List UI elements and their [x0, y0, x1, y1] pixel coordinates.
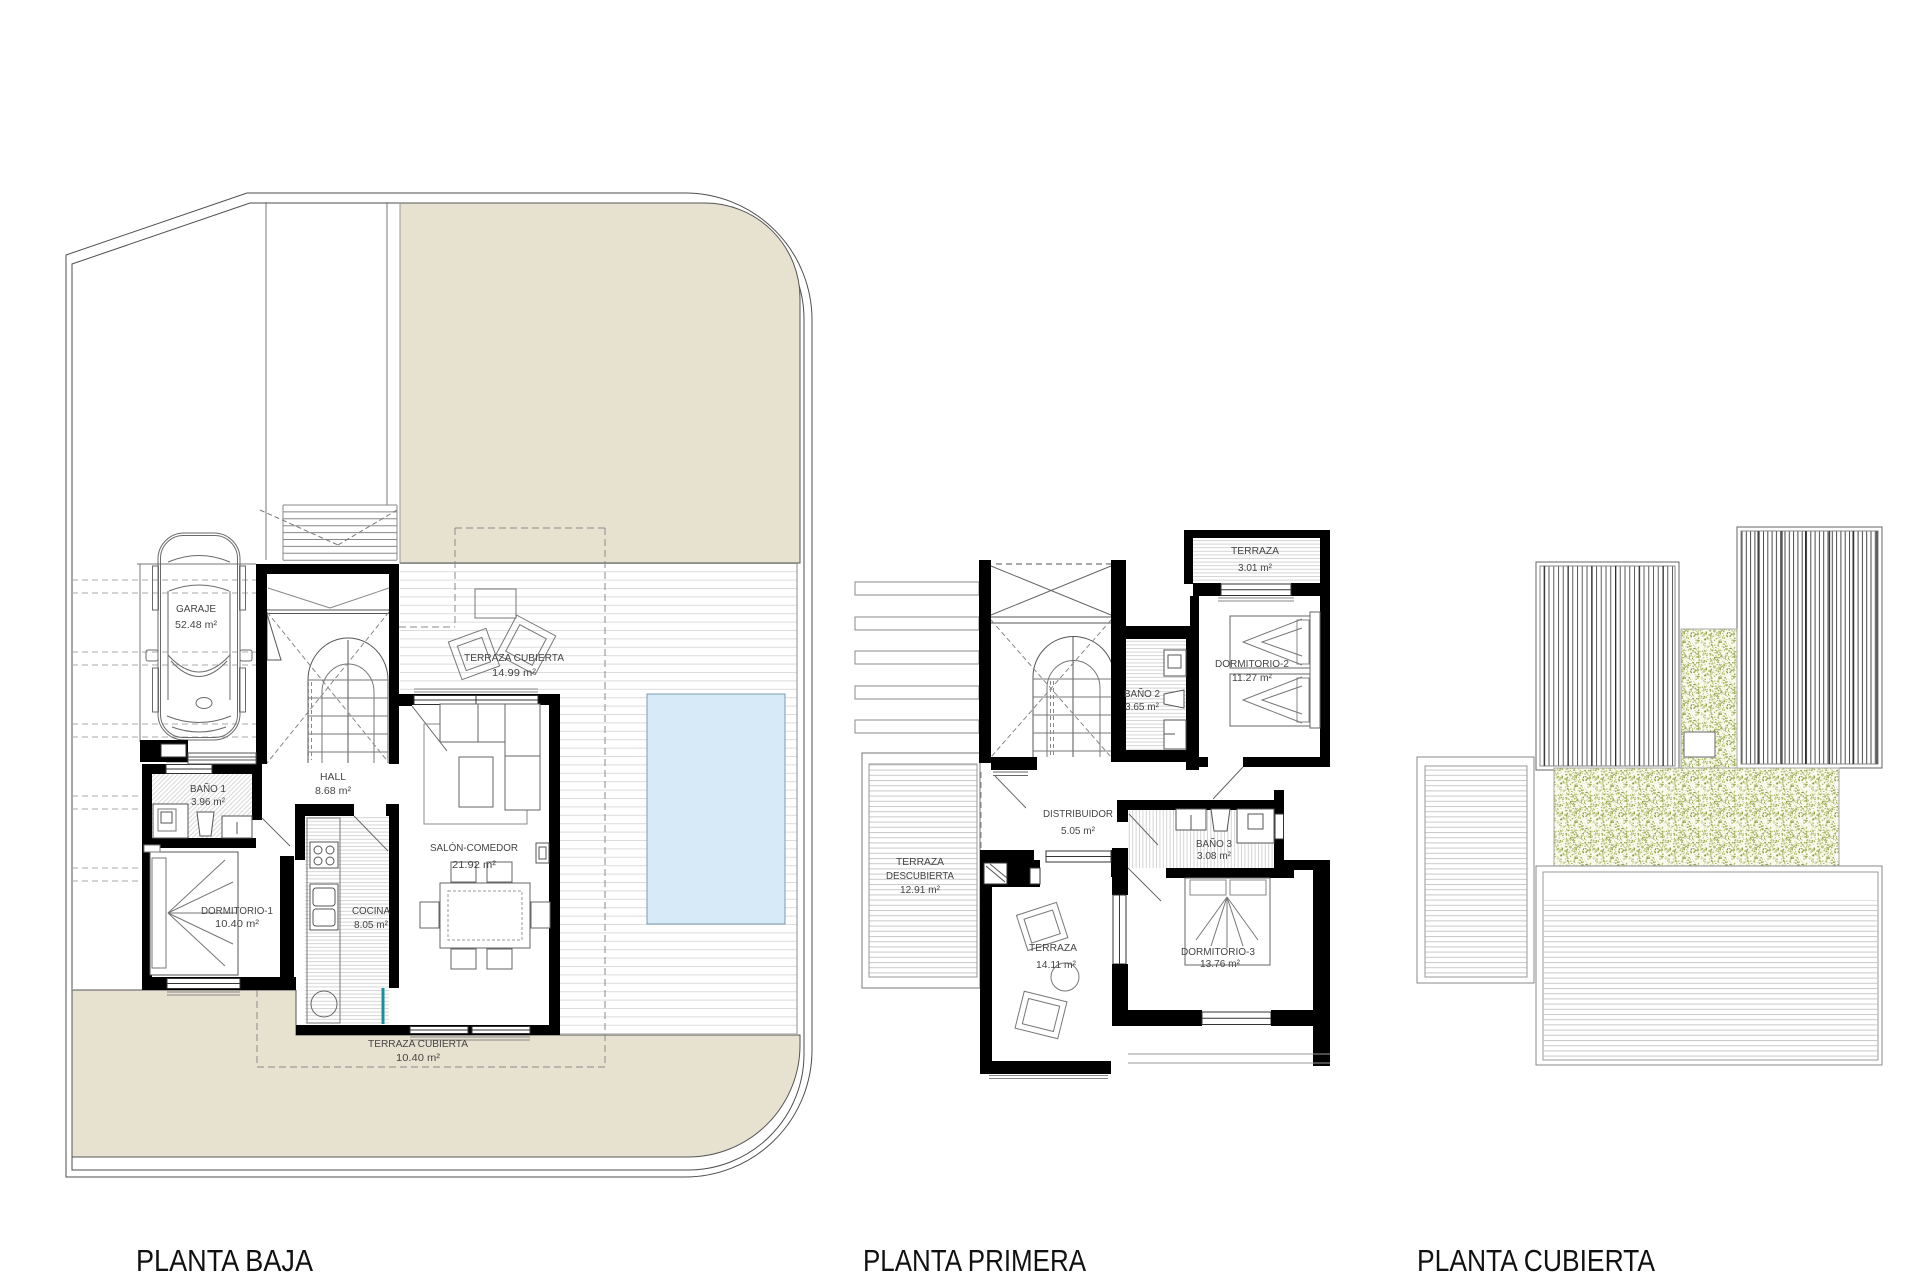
svg-text:TERRAZA: TERRAZA: [896, 856, 944, 868]
svg-text:3.65 m²: 3.65 m²: [1125, 701, 1159, 713]
svg-text:12.91 m²: 12.91 m²: [900, 884, 940, 896]
svg-text:13.76 m²: 13.76 m²: [1200, 958, 1240, 970]
svg-text:PLANTA BAJA: PLANTA BAJA: [136, 1243, 313, 1278]
svg-text:PLANTA CUBIERTA: PLANTA CUBIERTA: [1417, 1243, 1655, 1278]
svg-text:8.05 m²: 8.05 m²: [354, 919, 388, 931]
svg-text:10.40 m²: 10.40 m²: [215, 918, 260, 930]
svg-text:DORMITORIO-2: DORMITORIO-2: [1215, 658, 1289, 670]
svg-text:SALÓN-COMEDOR: SALÓN-COMEDOR: [430, 841, 518, 854]
svg-text:BAÑO 2: BAÑO 2: [1124, 687, 1160, 700]
svg-text:14.99 m²: 14.99 m²: [492, 667, 537, 679]
svg-text:52.48 m²: 52.48 m²: [175, 619, 218, 631]
svg-text:10.40 m²: 10.40 m²: [396, 1052, 441, 1064]
svg-text:DORMITORIO-3: DORMITORIO-3: [1181, 946, 1255, 958]
svg-text:BAÑO 3: BAÑO 3: [1196, 837, 1232, 850]
svg-text:14.11 m²: 14.11 m²: [1036, 959, 1076, 971]
svg-text:11.27 m²: 11.27 m²: [1232, 672, 1272, 684]
svg-text:3.01 m²: 3.01 m²: [1238, 562, 1272, 574]
svg-text:PLANTA PRIMERA: PLANTA PRIMERA: [863, 1243, 1086, 1278]
svg-text:COCINA: COCINA: [352, 905, 390, 917]
svg-text:DISTRIBUIDOR: DISTRIBUIDOR: [1043, 808, 1113, 820]
svg-text:3.08 m²: 3.08 m²: [1197, 850, 1231, 862]
svg-text:TERRAZA: TERRAZA: [1231, 545, 1279, 557]
svg-text:5.05 m²: 5.05 m²: [1061, 825, 1095, 837]
svg-text:8.68 m²: 8.68 m²: [315, 785, 351, 797]
svg-text:HALL: HALL: [320, 771, 346, 783]
svg-text:DORMITORIO-1: DORMITORIO-1: [201, 905, 273, 917]
svg-text:TERRAZA: TERRAZA: [1029, 942, 1077, 954]
svg-text:GARAJE: GARAJE: [176, 603, 216, 615]
svg-text:21.92 m²: 21.92 m²: [452, 859, 497, 871]
svg-text:TERRAZA CUBIERTA: TERRAZA CUBIERTA: [464, 652, 564, 664]
svg-text:BAÑO 1: BAÑO 1: [190, 782, 226, 795]
svg-text:DESCUBIERTA: DESCUBIERTA: [886, 870, 954, 882]
svg-text:TERRAZA CUBIERTA: TERRAZA CUBIERTA: [368, 1038, 468, 1050]
svg-text:3.96 m²: 3.96 m²: [191, 796, 225, 808]
